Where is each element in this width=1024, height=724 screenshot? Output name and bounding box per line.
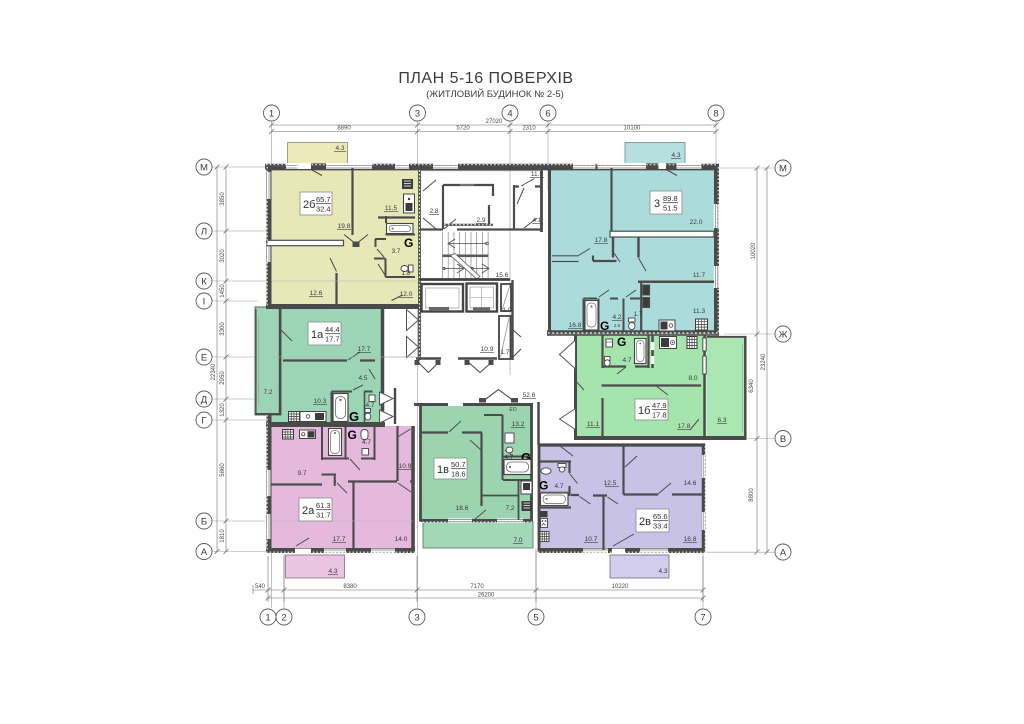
svg-text:12.0: 12.0 (400, 291, 413, 298)
svg-text:11.7: 11.7 (693, 272, 706, 279)
svg-text:1.0: 1.0 (502, 307, 511, 314)
svg-text:А: А (780, 548, 787, 559)
svg-text:10220: 10220 (612, 584, 629, 590)
svg-text:12.6: 12.6 (310, 290, 323, 297)
svg-text:2.8: 2.8 (429, 208, 438, 215)
svg-text:G: G (617, 335, 626, 349)
svg-text:(ЖИТЛОВИЙ БУДИНОК № 2-5): (ЖИТЛОВИЙ БУДИНОК № 2-5) (426, 88, 564, 100)
svg-text:10020: 10020 (751, 242, 757, 259)
svg-text:2а: 2а (302, 505, 315, 517)
svg-text:22340: 22340 (211, 363, 217, 380)
svg-text:1: 1 (269, 109, 274, 120)
svg-text:50.7: 50.7 (451, 460, 466, 469)
svg-text:89.8: 89.8 (663, 194, 678, 203)
svg-text:4.3: 4.3 (328, 568, 337, 575)
svg-text:3: 3 (414, 613, 419, 624)
svg-text:1320: 1320 (220, 403, 226, 417)
svg-text:4.1: 4.1 (532, 217, 541, 224)
svg-text:ПЛАН 5-16 ПОВЕРХІВ: ПЛАН 5-16 ПОВЕРХІВ (398, 70, 573, 87)
svg-text:17.7: 17.7 (325, 335, 340, 344)
svg-text:7.2: 7.2 (263, 389, 272, 396)
svg-text:4.7: 4.7 (362, 439, 371, 446)
svg-text:4.7: 4.7 (365, 402, 374, 409)
svg-text:G: G (404, 236, 413, 250)
svg-text:3300: 3300 (220, 322, 226, 336)
svg-text:8800: 8800 (749, 488, 755, 502)
svg-text:1.7: 1.7 (633, 311, 642, 318)
svg-text:16.8: 16.8 (569, 322, 582, 329)
svg-text:52.6: 52.6 (523, 392, 536, 399)
svg-text:18.6: 18.6 (456, 505, 469, 512)
svg-text:1.8: 1.8 (401, 270, 410, 277)
svg-text:8890: 8890 (337, 126, 351, 132)
svg-text:4.7: 4.7 (622, 357, 631, 364)
svg-text:2б: 2б (303, 199, 315, 211)
svg-text:1.7: 1.7 (500, 349, 509, 356)
svg-text:3: 3 (415, 109, 420, 120)
svg-text:В: В (780, 434, 786, 445)
svg-text:3020: 3020 (220, 249, 226, 263)
svg-text:51.5: 51.5 (663, 204, 678, 213)
svg-text:4.3: 4.3 (671, 152, 680, 159)
svg-text:10100: 10100 (624, 126, 641, 132)
svg-text:1: 1 (265, 613, 270, 624)
svg-text:10.9: 10.9 (399, 463, 412, 470)
svg-text:17.7: 17.7 (333, 536, 346, 543)
svg-text:1810: 1810 (220, 529, 226, 543)
svg-text:4.2: 4.2 (612, 314, 621, 321)
svg-text:14.0: 14.0 (395, 536, 408, 543)
svg-text:Ж: Ж (779, 330, 788, 341)
svg-text:2950: 2950 (220, 371, 226, 385)
svg-text:2: 2 (281, 613, 286, 624)
svg-text:11.3: 11.3 (693, 308, 706, 315)
svg-text:5720: 5720 (456, 126, 470, 132)
svg-text:6: 6 (545, 109, 550, 120)
svg-text:6.3: 6.3 (717, 417, 726, 424)
svg-text:26200: 26200 (478, 593, 495, 599)
svg-text:44.4: 44.4 (325, 325, 340, 334)
svg-text:23240: 23240 (761, 353, 767, 370)
svg-text:2в: 2в (639, 516, 651, 528)
svg-text:4.3: 4.3 (335, 145, 344, 152)
svg-text:31.7: 31.7 (316, 511, 331, 520)
svg-text:2.9: 2.9 (476, 217, 485, 224)
svg-text:4: 4 (507, 109, 512, 120)
svg-text:13.2: 13.2 (512, 421, 525, 428)
svg-text:14.6: 14.6 (684, 480, 697, 487)
svg-text:540: 540 (255, 584, 266, 590)
svg-text:G: G (348, 428, 357, 442)
svg-text:А: А (201, 547, 208, 558)
svg-text:8.0: 8.0 (688, 375, 697, 382)
svg-text:10.9: 10.9 (481, 346, 494, 353)
svg-text:65.7: 65.7 (316, 195, 331, 204)
svg-text:47.9: 47.9 (652, 401, 667, 410)
svg-text:17.7: 17.7 (358, 346, 371, 353)
svg-text:8380: 8380 (343, 584, 357, 590)
svg-text:4.7: 4.7 (504, 454, 513, 461)
svg-text:3: 3 (654, 198, 660, 210)
svg-text:15.6: 15.6 (496, 272, 509, 279)
svg-text:6340: 6340 (749, 379, 755, 393)
svg-text:8: 8 (713, 109, 718, 120)
svg-text:17.8: 17.8 (678, 423, 691, 430)
svg-text:І: І (203, 297, 206, 308)
svg-text:5: 5 (533, 613, 538, 624)
svg-text:33.4: 33.4 (653, 522, 668, 531)
svg-text:1а: 1а (311, 329, 324, 341)
svg-text:17.8: 17.8 (595, 237, 608, 244)
svg-text:16.8: 16.8 (684, 536, 697, 543)
svg-text:К: К (201, 277, 207, 288)
svg-text:22.0: 22.0 (690, 219, 703, 226)
svg-text:Г: Г (201, 416, 206, 427)
svg-text:2.6: 2.6 (614, 323, 621, 328)
svg-text:7170: 7170 (470, 584, 484, 590)
svg-text:Е: Е (201, 353, 207, 364)
svg-text:10.7: 10.7 (585, 536, 598, 543)
svg-text:4.3: 4.3 (658, 568, 667, 575)
svg-text:G: G (600, 319, 609, 333)
svg-text:32.4: 32.4 (316, 205, 331, 214)
svg-text:Д: Д (201, 395, 208, 406)
svg-text:М: М (200, 163, 208, 174)
svg-text:5860: 5860 (220, 463, 226, 477)
svg-text:2310: 2310 (522, 126, 536, 132)
svg-text:4.7: 4.7 (554, 483, 563, 490)
svg-text:ЕО: ЕО (509, 407, 516, 413)
svg-text:4.5: 4.5 (358, 375, 367, 382)
svg-text:1450: 1450 (220, 284, 226, 298)
svg-text:10.3: 10.3 (314, 398, 327, 405)
svg-text:12.5: 12.5 (604, 480, 617, 487)
svg-text:3850: 3850 (220, 192, 226, 206)
svg-text:G: G (539, 479, 548, 493)
svg-text:1в: 1в (437, 464, 449, 476)
svg-text:М: М (779, 164, 787, 175)
svg-text:1б: 1б (638, 405, 650, 417)
svg-text:11.5: 11.5 (531, 171, 544, 178)
svg-text:7.2: 7.2 (505, 505, 514, 512)
svg-text:Л: Л (201, 227, 207, 238)
svg-text:18.6: 18.6 (451, 470, 466, 479)
svg-text:11.1: 11.1 (587, 421, 600, 428)
svg-text:7: 7 (700, 613, 705, 624)
svg-text:19.8: 19.8 (338, 223, 351, 230)
svg-text:G: G (349, 409, 359, 424)
svg-text:3.7: 3.7 (391, 248, 400, 255)
svg-text:Б: Б (201, 517, 207, 528)
svg-text:7.0: 7.0 (513, 537, 522, 544)
svg-text:27020: 27020 (486, 119, 503, 125)
svg-text:9.7: 9.7 (297, 470, 306, 477)
svg-text:17.8: 17.8 (652, 411, 667, 420)
svg-text:65.6: 65.6 (653, 512, 668, 521)
svg-text:61.3: 61.3 (316, 501, 331, 510)
svg-text:11.5: 11.5 (385, 205, 398, 212)
